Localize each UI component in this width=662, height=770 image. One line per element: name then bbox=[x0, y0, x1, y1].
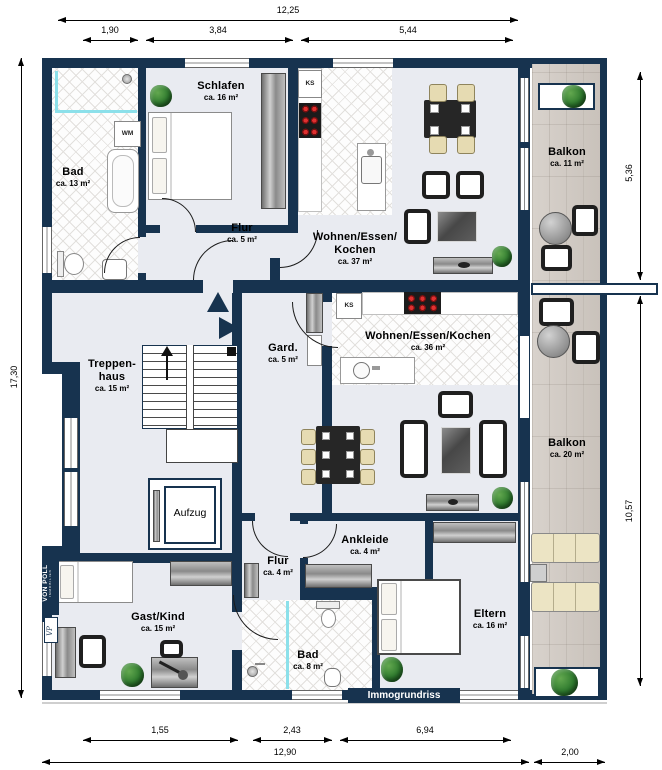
wardrobe bbox=[305, 564, 372, 588]
plant-icon bbox=[381, 657, 403, 682]
chair bbox=[301, 449, 316, 465]
armchair bbox=[79, 635, 106, 668]
shower-glass bbox=[286, 601, 289, 689]
place-setting bbox=[430, 126, 439, 135]
room-name: Bad bbox=[278, 649, 338, 662]
dimension-label: 5,44 bbox=[380, 25, 436, 35]
toilet bbox=[321, 609, 336, 628]
fridge-label: KS bbox=[298, 80, 322, 87]
dimension-line bbox=[253, 740, 332, 741]
dimension-label: 1,90 bbox=[82, 25, 138, 35]
dimension-line bbox=[640, 296, 641, 686]
room-area: ca. 13 m² bbox=[38, 179, 108, 189]
room-label-wohnen-36: Wohnen/Essen/Kochen ca. 36 m² bbox=[360, 330, 496, 353]
room-name: Bad bbox=[38, 166, 108, 179]
dimension-line bbox=[301, 40, 513, 41]
wall bbox=[288, 58, 298, 225]
toilet bbox=[64, 253, 84, 275]
dimension-line bbox=[640, 72, 641, 280]
dimension-label: 6,94 bbox=[395, 725, 455, 735]
balcony-divider bbox=[531, 283, 658, 295]
room-label-gast-kind: Gast/Kind ca. 15 m² bbox=[118, 611, 198, 634]
room-label-gard: Gard. ca. 5 m² bbox=[253, 342, 313, 365]
dimension-label: 2,00 bbox=[540, 747, 600, 757]
desk bbox=[55, 627, 76, 678]
fridge-label: KS bbox=[336, 302, 362, 309]
stove-icon bbox=[404, 292, 441, 314]
window bbox=[42, 227, 52, 273]
brand-subname: IMMOBILIEN bbox=[49, 553, 52, 613]
floor-plan: Aufzug WM KS KS bbox=[0, 0, 662, 770]
chair bbox=[301, 469, 316, 485]
coffee-table bbox=[437, 211, 477, 242]
balcony-chair bbox=[572, 331, 600, 364]
desk-lamp-icon bbox=[178, 670, 188, 680]
place-setting bbox=[322, 432, 330, 440]
room-name: haus bbox=[72, 371, 152, 384]
entrance-arrow-icon bbox=[207, 292, 229, 312]
chair bbox=[429, 84, 447, 102]
place-setting bbox=[461, 104, 470, 113]
room-area: ca. 20 m² bbox=[532, 450, 602, 460]
door-opening bbox=[255, 513, 290, 521]
room-area: ca. 15 m² bbox=[118, 624, 198, 634]
plant-icon bbox=[551, 669, 578, 696]
dimension-line bbox=[83, 40, 138, 41]
sideboard-handle bbox=[448, 499, 458, 505]
room-name: Schlafen bbox=[176, 80, 266, 93]
room-label-flur-og: Flur ca. 5 m² bbox=[212, 222, 272, 245]
room-label-bad-13: Bad ca. 13 m² bbox=[38, 166, 108, 189]
room-area: ca. 5 m² bbox=[212, 235, 272, 245]
room-label-wohnen-37: Wohnen/Essen/ Kochen ca. 37 m² bbox=[309, 231, 401, 267]
stove-icon bbox=[299, 103, 321, 138]
pillow bbox=[381, 583, 397, 615]
faucet-icon bbox=[372, 366, 380, 370]
balcony-chair bbox=[572, 205, 598, 236]
room-name: Gast/Kind bbox=[118, 611, 198, 624]
plant-icon bbox=[492, 246, 512, 267]
stair-direction-line bbox=[166, 354, 168, 380]
plant-icon bbox=[150, 85, 172, 107]
window bbox=[185, 58, 249, 68]
room-label-balkon-20: Balkon ca. 20 m² bbox=[532, 437, 602, 460]
room-area: ca. 11 m² bbox=[532, 159, 602, 169]
balcony-door bbox=[520, 336, 529, 418]
balcony-door bbox=[520, 148, 529, 210]
room-area: ca. 4 m² bbox=[248, 568, 308, 578]
toilet-tank bbox=[316, 601, 340, 609]
elevator-label: Aufzug bbox=[164, 507, 216, 521]
armchair bbox=[422, 171, 450, 199]
balcony-table bbox=[537, 325, 570, 358]
room-name: Flur bbox=[212, 222, 272, 235]
sun-lounger bbox=[531, 582, 600, 612]
building-recess bbox=[42, 372, 62, 548]
dimension-label: 2,43 bbox=[262, 725, 322, 735]
shower-head-icon bbox=[247, 666, 258, 677]
balcony-edge bbox=[530, 58, 607, 64]
pillow bbox=[152, 117, 167, 153]
room-area: ca. 37 m² bbox=[309, 257, 401, 267]
balcony-chair bbox=[541, 245, 572, 271]
faucet-icon bbox=[367, 149, 374, 156]
room-label-schlafen: Schlafen ca. 16 m² bbox=[176, 80, 266, 103]
kitchen-sink bbox=[353, 362, 370, 379]
place-setting bbox=[322, 470, 330, 478]
chair bbox=[360, 429, 375, 445]
dimension-line bbox=[146, 40, 293, 41]
place-setting bbox=[346, 470, 354, 478]
room-area: ca. 8 m² bbox=[278, 662, 338, 672]
room-name: Eltern bbox=[455, 608, 525, 621]
shower-head-icon bbox=[122, 74, 132, 84]
place-setting bbox=[322, 451, 330, 459]
dimension-line bbox=[21, 58, 22, 698]
dimension-line bbox=[42, 762, 529, 763]
washing-machine-label: WM bbox=[114, 130, 141, 137]
room-name: Wohnen/Essen/Kochen bbox=[360, 330, 496, 343]
shower-glass bbox=[55, 71, 58, 113]
entrance-arrow-icon bbox=[219, 317, 239, 339]
brand-monogram-box: VP bbox=[44, 617, 58, 643]
room-area: ca. 16 m² bbox=[455, 621, 525, 631]
wall bbox=[300, 587, 380, 600]
pillow bbox=[381, 619, 397, 651]
room-area: ca. 16 m² bbox=[176, 93, 266, 103]
facade-line bbox=[42, 702, 607, 704]
dimension-label: 17,30 bbox=[9, 349, 19, 405]
brand-logo: VON POLL IMMOBILIEN bbox=[42, 551, 59, 615]
wall bbox=[270, 258, 280, 280]
dimension-label: 12,90 bbox=[255, 747, 315, 757]
elevator-door bbox=[153, 490, 160, 542]
dimension-label: 3,84 bbox=[190, 25, 246, 35]
room-name: Flur bbox=[248, 555, 308, 568]
window bbox=[64, 418, 78, 468]
balcony-chair bbox=[539, 298, 574, 326]
sink-counter bbox=[340, 357, 415, 384]
balcony-table bbox=[539, 212, 572, 245]
room-label-flur-eg: Flur ca. 4 m² bbox=[248, 555, 308, 578]
watermark: Immogrundriss bbox=[348, 688, 460, 703]
window bbox=[520, 636, 529, 688]
window bbox=[520, 78, 529, 142]
sofa bbox=[400, 420, 428, 478]
place-setting bbox=[346, 451, 354, 459]
stair-start-marker bbox=[227, 347, 236, 356]
dimension-line bbox=[58, 20, 518, 21]
stair-up-arrow-icon bbox=[161, 346, 173, 356]
toilet-tank bbox=[57, 251, 64, 277]
room-name: Balkon bbox=[532, 146, 602, 159]
room-name: Ankleide bbox=[330, 534, 400, 547]
chair bbox=[301, 429, 316, 445]
room-name: Kochen bbox=[309, 244, 401, 257]
room-area: ca. 15 m² bbox=[72, 384, 152, 394]
window bbox=[520, 482, 529, 582]
room-name: Wohnen/Essen/ bbox=[309, 231, 401, 244]
pillow bbox=[152, 158, 167, 194]
dimension-label: 5,36 bbox=[624, 145, 634, 201]
room-name: Gard. bbox=[253, 342, 313, 355]
wall bbox=[425, 521, 433, 587]
sideboard bbox=[433, 522, 516, 543]
bathtub-inner bbox=[112, 155, 134, 207]
sideboard-handle bbox=[458, 262, 470, 268]
plant-icon bbox=[492, 487, 513, 509]
place-setting bbox=[461, 126, 470, 135]
shower-glass bbox=[55, 110, 137, 113]
chair bbox=[457, 136, 475, 154]
side-table bbox=[530, 564, 547, 582]
armchair bbox=[456, 171, 484, 199]
room-label-balkon-11: Balkon ca. 11 m² bbox=[532, 146, 602, 169]
duvet-line bbox=[77, 562, 79, 602]
sofa bbox=[404, 209, 431, 244]
wall bbox=[42, 58, 532, 68]
sun-lounger bbox=[531, 533, 600, 563]
room-name: Balkon bbox=[532, 437, 602, 450]
stair-divider bbox=[186, 345, 194, 429]
room-area: ca. 5 m² bbox=[253, 355, 313, 365]
armchair bbox=[438, 391, 473, 418]
kitchen-sink bbox=[361, 156, 382, 184]
wardrobe bbox=[170, 561, 232, 586]
chair bbox=[457, 84, 475, 102]
brand-monogram: VP bbox=[46, 618, 56, 644]
duvet-line bbox=[400, 581, 402, 653]
dimension-line bbox=[534, 762, 605, 763]
pillow bbox=[60, 565, 74, 599]
dimension-line bbox=[340, 740, 511, 741]
window bbox=[292, 690, 342, 700]
room-label-ankleide: Ankleide ca. 4 m² bbox=[330, 534, 400, 557]
shower-arm bbox=[255, 663, 265, 665]
room-label-treppenhaus: Treppen- haus ca. 15 m² bbox=[72, 358, 152, 394]
place-setting bbox=[346, 432, 354, 440]
window bbox=[333, 58, 393, 68]
chair bbox=[160, 640, 183, 658]
room-area: ca. 36 m² bbox=[360, 343, 496, 353]
room-label-eltern: Eltern ca. 16 m² bbox=[455, 608, 525, 631]
dimension-label: 10,57 bbox=[624, 483, 634, 539]
duvet-line bbox=[170, 113, 172, 199]
dimension-label: 12,25 bbox=[258, 5, 318, 15]
chair bbox=[360, 469, 375, 485]
coffee-table bbox=[441, 427, 471, 474]
room-name: Treppen- bbox=[72, 358, 152, 371]
place-setting bbox=[430, 104, 439, 113]
window bbox=[64, 472, 78, 526]
room-area: ca. 4 m² bbox=[330, 547, 400, 557]
sofa bbox=[479, 420, 507, 478]
chair bbox=[360, 449, 375, 465]
dimension-line bbox=[83, 740, 238, 741]
stair-landing bbox=[166, 429, 238, 463]
room-label-bad-8: Bad ca. 8 m² bbox=[278, 649, 338, 672]
wall bbox=[42, 58, 52, 372]
plant-icon bbox=[562, 85, 586, 108]
window bbox=[100, 690, 180, 700]
chair bbox=[429, 136, 447, 154]
dimension-label: 1,55 bbox=[130, 725, 190, 735]
plant-icon bbox=[121, 663, 144, 687]
